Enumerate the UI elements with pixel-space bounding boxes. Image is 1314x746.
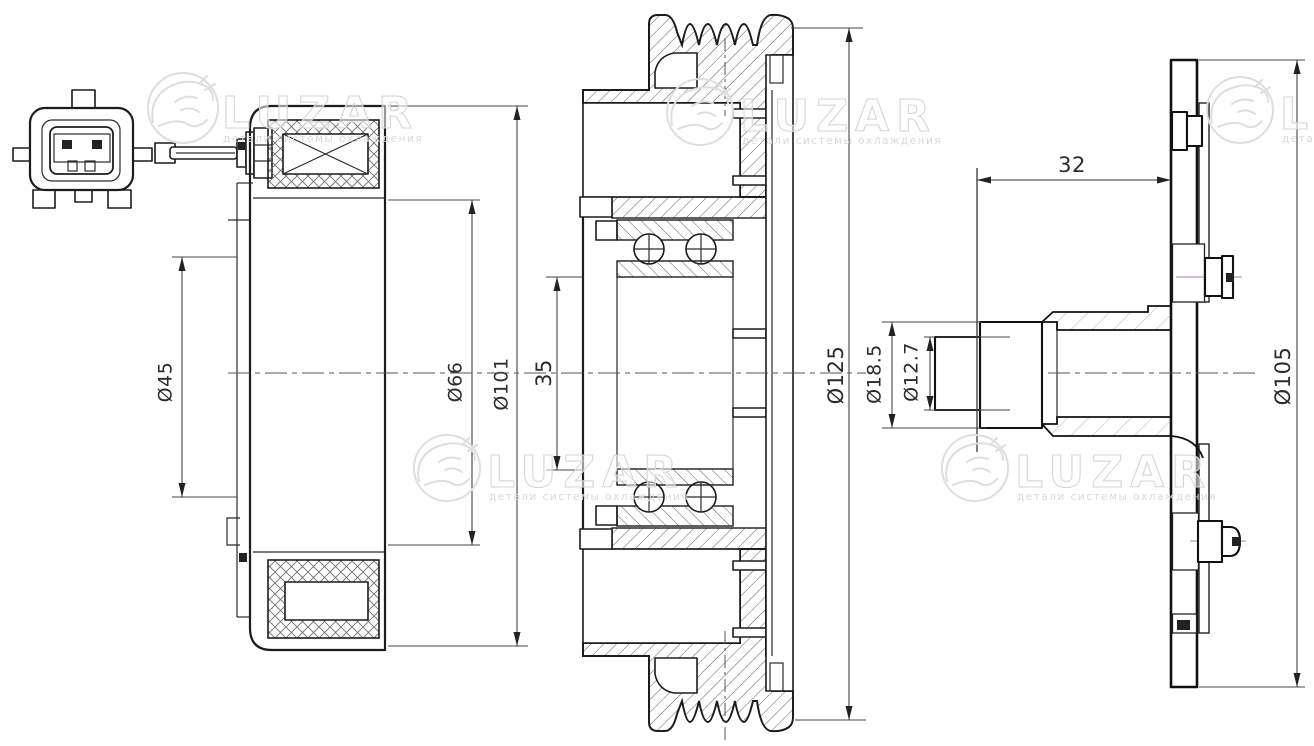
connector-pin-1 xyxy=(62,140,72,149)
rivet-3-body xyxy=(1198,521,1222,562)
dim-label-d45: Ø45 xyxy=(155,362,177,403)
dim-label-d66: Ø66 xyxy=(445,362,467,403)
luzar-tagline: детали системы охлаждения xyxy=(1017,491,1217,503)
bearing-seal-top xyxy=(596,221,617,240)
hub-sleeve xyxy=(980,322,1042,428)
luzar-tagline: детали системы охлаждения xyxy=(489,491,689,503)
clutch-assembly-drawing: Ø45 Ø66 Ø101 xyxy=(0,0,1314,746)
rivet-1-head xyxy=(1172,112,1187,150)
hub-tube-top-wall xyxy=(1042,306,1171,330)
hub-tube-bottom-wall xyxy=(1042,417,1171,436)
rim-tab xyxy=(733,176,766,185)
hub-lip-bottom xyxy=(580,529,612,549)
watermark: LUZAR детали системы охлаждения xyxy=(942,435,1217,503)
coil-plate-notch xyxy=(227,518,240,545)
connector-right-leg xyxy=(108,190,131,208)
drawing-sheet: Ø45 Ø66 Ø101 xyxy=(0,0,1314,746)
dim-label-d127: Ø12.7 xyxy=(901,342,923,402)
rim-tab xyxy=(733,329,766,338)
luzar-dragon-icon xyxy=(148,73,218,143)
pulley-lip-recess-bottom xyxy=(655,658,697,693)
luzar-tagline: детали системы охлаждения xyxy=(223,133,423,145)
luzar-wordmark: LUZAR xyxy=(222,88,419,139)
hub-shaft-tip xyxy=(935,337,980,410)
bearing-inner-race-top xyxy=(617,261,733,277)
rivet-zone-2 xyxy=(1173,244,1205,302)
rim-tab xyxy=(733,408,766,417)
hub-lip-top xyxy=(580,197,612,217)
connector-right-wing xyxy=(133,148,152,161)
rim-tab xyxy=(733,628,766,637)
luzar-dragon-icon xyxy=(1207,77,1273,143)
bearing-outer-race-top xyxy=(617,220,733,240)
rim-tab xyxy=(733,561,766,570)
watermark: LUZAR детали системы охлаждения xyxy=(414,435,689,503)
rivet-1-body xyxy=(1187,116,1202,146)
connector-left-leg xyxy=(33,190,55,208)
coil-wire-exit xyxy=(239,553,247,562)
rivet-2-pin xyxy=(1226,273,1234,282)
luzar-tagline: детали системы охлаждения xyxy=(1282,133,1314,145)
dim-label-d125: Ø125 xyxy=(824,346,848,405)
bearing-seal-bottom xyxy=(596,506,617,525)
connector-top-tab xyxy=(72,90,95,108)
luzar-tagline: детали системы охлаждения xyxy=(742,135,942,147)
rivet-3-pin xyxy=(1232,537,1241,546)
luzar-dragon-icon xyxy=(942,435,1008,501)
coil-cavity-top xyxy=(583,103,740,197)
hub-web-top xyxy=(612,197,766,218)
dim-label-32: 32 xyxy=(1058,153,1086,177)
dim-label-d101: Ø101 xyxy=(491,357,513,410)
connector-view xyxy=(13,90,152,208)
hub-web-bottom xyxy=(612,528,766,549)
rivet-4-pin xyxy=(1177,620,1190,630)
dim-label-d105: Ø105 xyxy=(1271,347,1295,406)
watermark: LUZAR детали системы охлаждения xyxy=(148,73,423,145)
connector-bottom-tab xyxy=(75,190,92,202)
dim-label-d185: Ø18.5 xyxy=(864,344,886,404)
luzar-dragon-icon xyxy=(414,435,480,501)
coil-section-view: Ø45 Ø66 Ø101 xyxy=(155,106,529,650)
connector-pin-2 xyxy=(92,140,102,149)
watermark: LUZAR детали системы охлаждения xyxy=(1207,77,1314,145)
coil-cavity-bottom xyxy=(583,549,740,643)
bearing-outer-race-bottom xyxy=(617,506,733,526)
pulley-lip-recess-top xyxy=(655,53,697,88)
coil-bobbin-window-bottom xyxy=(285,582,368,620)
connector-left-wing xyxy=(13,148,30,161)
